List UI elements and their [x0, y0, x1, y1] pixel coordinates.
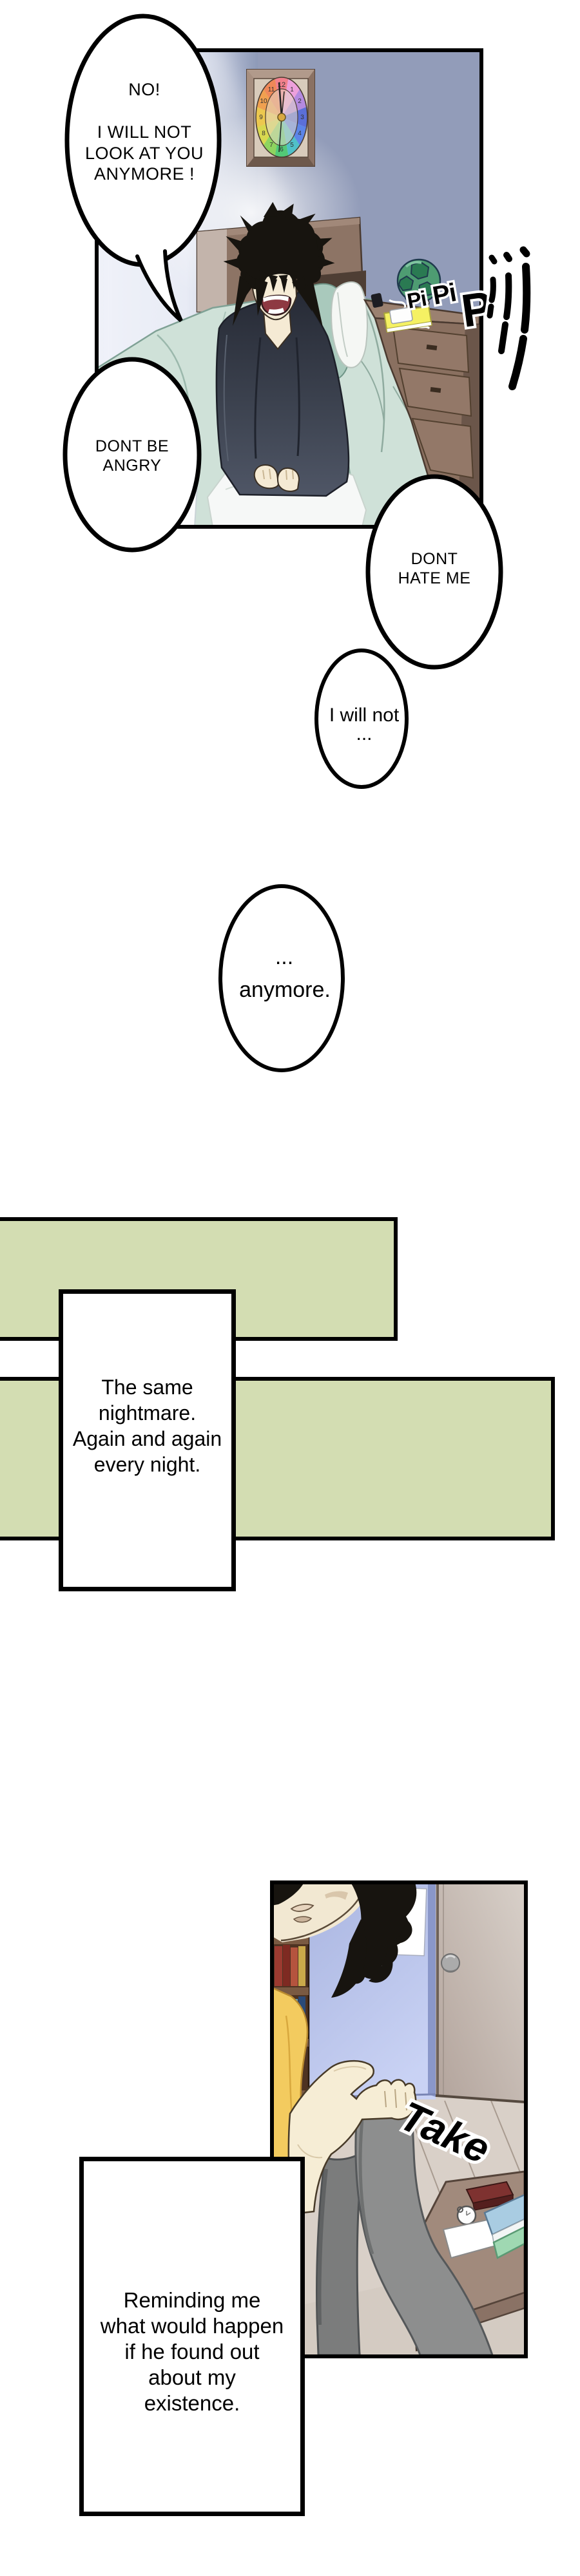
svg-text:5: 5	[290, 142, 294, 149]
svg-text:DONT: DONT	[411, 550, 458, 568]
svg-text:4: 4	[298, 130, 302, 137]
svg-text:2: 2	[298, 98, 302, 105]
svg-text:9: 9	[259, 114, 263, 121]
svg-text:HATE ME: HATE ME	[398, 569, 471, 587]
svg-text:anymore.: anymore.	[239, 978, 331, 1002]
svg-text:ANYMORE !: ANYMORE !	[94, 164, 195, 184]
svg-text:1: 1	[290, 86, 294, 93]
svg-text:LOOK AT YOU: LOOK AT YOU	[85, 144, 204, 163]
svg-text:Pi: Pi	[430, 278, 458, 310]
svg-text:6: 6	[280, 146, 284, 153]
svg-text:11: 11	[268, 86, 275, 93]
svg-text:DONT BE: DONT BE	[95, 437, 169, 455]
svg-text:...: ...	[356, 723, 372, 744]
svg-text:...: ...	[275, 945, 293, 969]
svg-text:8: 8	[262, 130, 266, 137]
svg-text:ANGRY: ANGRY	[103, 457, 162, 475]
svg-text:I WILL NOT: I WILL NOT	[97, 122, 192, 142]
svg-text:7: 7	[269, 142, 273, 149]
svg-text:3: 3	[300, 114, 304, 121]
svg-text:NO!: NO!	[128, 80, 160, 99]
svg-text:10: 10	[260, 98, 267, 105]
